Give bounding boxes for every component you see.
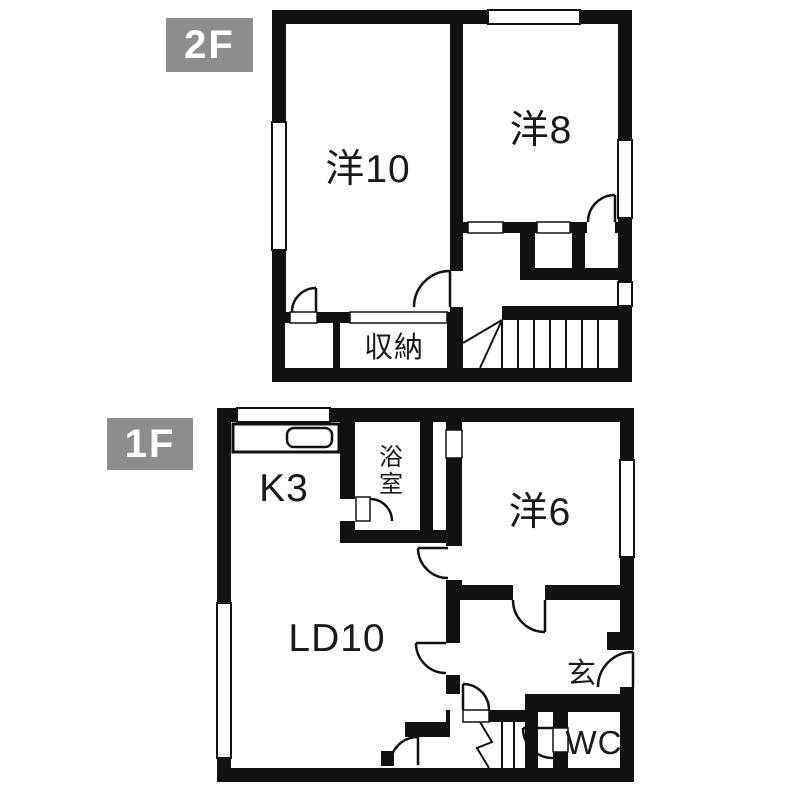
f2-opening-shuno: [350, 312, 447, 323]
f2-window-left: [272, 122, 286, 250]
floor-badge-1f: 1F: [107, 418, 193, 470]
f2-opening-small-closet: [290, 312, 317, 323]
kitchen-sink: [287, 428, 332, 447]
f2-window-landing: [618, 282, 632, 306]
f1-window-yo6-left: [446, 430, 462, 458]
f2-hall-winder: [463, 306, 502, 368]
f2-small-closet: [285, 323, 333, 368]
room-label-yo6: 洋6: [509, 481, 572, 537]
f1-wall-jog: [405, 722, 450, 737]
f2-stairs-area: [502, 320, 618, 368]
floor-badge-2f: 2F: [166, 18, 253, 72]
f1-stair-door-gap: [463, 710, 489, 722]
f1-window-top-kitchen: [237, 408, 330, 422]
f2-hall-upper: [463, 233, 520, 306]
f1-bath-door-leaf: [356, 497, 370, 521]
f1-yo6-door-gap: [446, 546, 462, 580]
f1-bath-door-gap: [340, 499, 356, 521]
room-label-bath: 浴室: [371, 444, 406, 498]
f2-yo10-door-gap: [450, 271, 463, 307]
f1-ld-genkan-door-gap: [446, 643, 460, 675]
f1-corridor-ld: [446, 736, 460, 768]
room-label-k3: K3: [259, 467, 309, 511]
f2-yo8-door-gap: [587, 222, 615, 233]
floorplan-canvas: 2F 1F 洋10 洋8 収納 K3 浴室 洋6 LD10 玄 WC: [0, 0, 800, 800]
f1-stairs-area: [460, 722, 525, 768]
f2-window-right: [618, 140, 632, 218]
f2-opening-closet1: [537, 222, 570, 233]
f2-closet-2: [585, 233, 618, 268]
room-label-yo10: 洋10: [325, 138, 410, 194]
floorplan-drawing: [0, 0, 800, 800]
f1-genkan-yo6-door-gap: [513, 585, 545, 600]
f2-window-top: [488, 10, 580, 24]
room-label-ld10: LD10: [288, 617, 385, 661]
f1-window-right-yo6: [620, 460, 634, 557]
room-label-yo8: 洋8: [510, 99, 573, 155]
f2-corridor: [520, 280, 618, 306]
room-label-wc: WC: [566, 724, 623, 762]
f1-void-strip: [433, 422, 446, 530]
f2-closet-1: [535, 233, 572, 268]
f1-door-jamb: [607, 632, 622, 650]
room-label-genkan: 玄: [567, 650, 597, 692]
f2-opening-hall: [468, 222, 503, 233]
f1-wc-ante: [538, 712, 553, 768]
f1-window-left-ld: [217, 603, 231, 758]
room-label-shuno: 収納: [364, 324, 424, 366]
